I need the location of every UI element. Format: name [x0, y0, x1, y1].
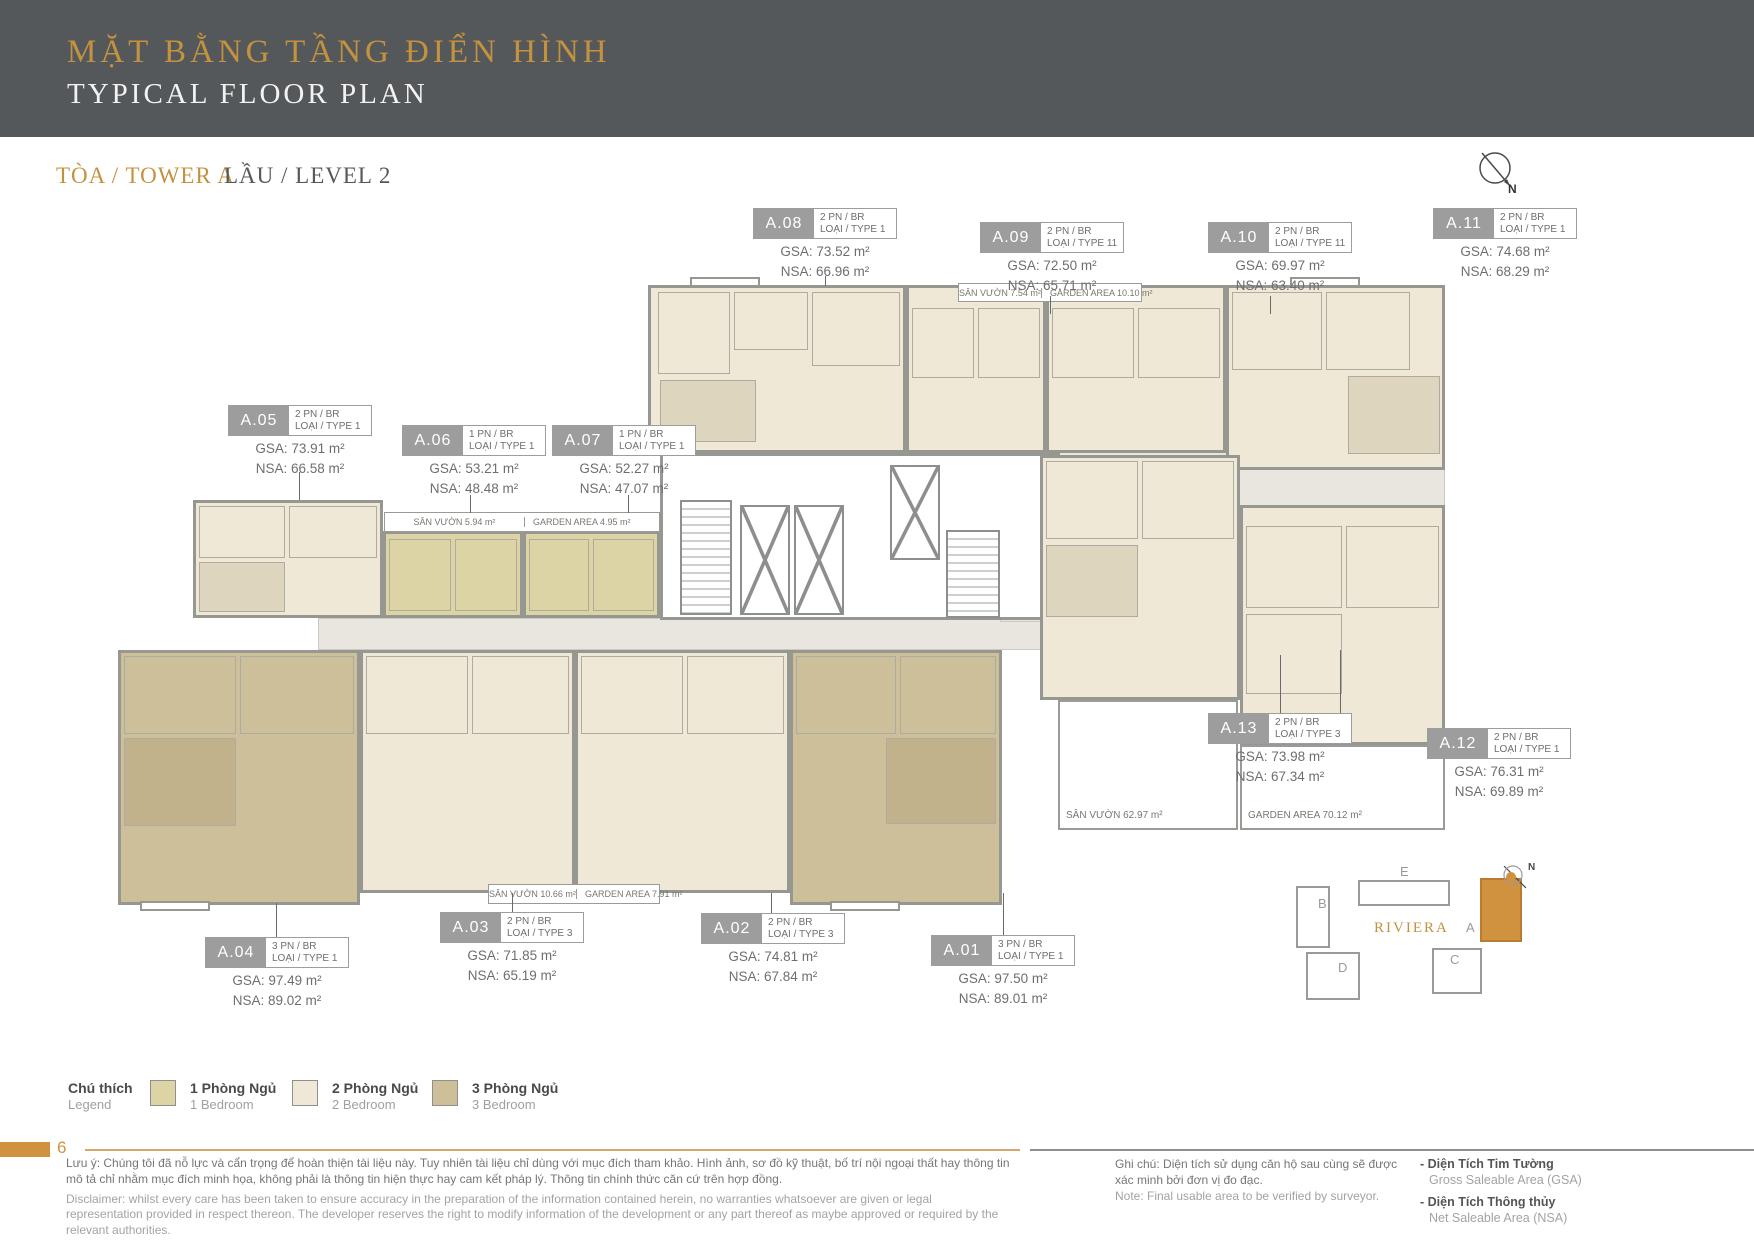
minimap-project-name: RIVIERA	[1374, 920, 1449, 937]
room-divider	[734, 292, 808, 350]
unit-gsa: GSA: 73.52 m²	[753, 244, 897, 259]
unit-type: 2 PN / BRLOẠI / TYPE 1	[289, 406, 371, 435]
minimap-building-d	[1306, 952, 1360, 1000]
room-divider	[687, 656, 784, 734]
legend-title-vi: Chú thích	[68, 1080, 133, 1096]
room-divider	[658, 292, 730, 374]
unit-nsa: NSA: 48.48 m²	[402, 481, 546, 496]
minimap-compass-label: N	[1528, 862, 1535, 873]
room-divider	[240, 656, 354, 734]
disclaimer-block: Lưu ý: Chúng tôi đã nỗ lực và cẩn trọng …	[66, 1156, 1011, 1239]
unit-id: A.12	[1428, 729, 1488, 758]
unit-gsa: GSA: 76.31 m²	[1427, 764, 1571, 779]
unit-label-a11: A.11 2 PN / BRLOẠI / TYPE 1 GSA: 74.68 m…	[1433, 208, 1577, 279]
garden-label: GARDEN AREA 70.12 m²	[1248, 810, 1362, 821]
room-divider	[199, 562, 285, 612]
room-divider	[886, 738, 996, 824]
room-divider	[1052, 308, 1134, 378]
elevator-shaft	[740, 505, 790, 615]
unit-label-a02: A.02 2 PN / BRLOẠI / TYPE 3 GSA: 74.81 m…	[701, 913, 845, 984]
unit-tag: A.01 3 PN / BRLOẠI / TYPE 1	[931, 935, 1075, 966]
staircase	[946, 530, 1000, 618]
staircase	[680, 500, 732, 615]
unit-id: A.07	[553, 426, 613, 455]
unit-type: 2 PN / BRLOẠI / TYPE 3	[1269, 714, 1351, 743]
unit-label-a09: A.09 2 PN / BRLOẠI / TYPE 11 GSA: 72.50 …	[980, 222, 1124, 293]
legend-label-1br-en: 1 Bedroom	[190, 1097, 254, 1112]
unit-tag: A.13 2 PN / BRLOẠI / TYPE 3	[1208, 713, 1352, 744]
garden-label: GARDEN AREA 4.95 m²	[524, 517, 631, 527]
unit-label-a08: A.08 2 PN / BRLOẠI / TYPE 1 GSA: 73.52 m…	[753, 208, 897, 279]
unit-type: 2 PN / BRLOẠI / TYPE 1	[814, 209, 896, 238]
unit-nsa: NSA: 67.84 m²	[701, 969, 845, 984]
unit-tag: A.06 1 PN / BRLOẠI / TYPE 1	[402, 425, 546, 456]
legend-swatch-3br	[432, 1080, 458, 1106]
unit-tag: A.12 2 PN / BRLOẠI / TYPE 1	[1427, 728, 1571, 759]
room-divider	[389, 539, 451, 611]
unit-type: 2 PN / BRLOẠI / TYPE 3	[762, 914, 844, 943]
gsa-term: - Diện Tích Tim Tường	[1420, 1156, 1750, 1172]
balcony	[140, 901, 210, 911]
room-divider	[455, 539, 517, 611]
minimap-label-e: E	[1400, 864, 1409, 879]
garden-label: SÂN VƯỜN 10.66 m²	[489, 889, 576, 899]
unit-tag: A.10 2 PN / BRLOẠI / TYPE 11	[1208, 222, 1352, 253]
room-divider	[912, 308, 974, 378]
leader-line-a07	[628, 495, 629, 513]
unit-tag: A.05 2 PN / BRLOẠI / TYPE 1	[228, 405, 372, 436]
nsa-term: - Diện Tích Thông thủy	[1420, 1194, 1750, 1210]
unit-tag: A.03 2 PN / BRLOẠI / TYPE 3	[440, 912, 584, 943]
room-divider	[900, 656, 996, 734]
room-divider	[1046, 461, 1138, 539]
unit-label-a12: A.12 2 PN / BRLOẠI / TYPE 1 GSA: 76.31 m…	[1427, 728, 1571, 799]
floor-plan-page: MẶT BẰNG TẦNG ĐIỂN HÌNH TYPICAL FLOOR PL…	[0, 0, 1754, 1241]
legend-title-en: Legend	[68, 1097, 111, 1112]
unit-label-a07: A.07 1 PN / BRLOẠI / TYPE 1 GSA: 52.27 m…	[552, 425, 696, 496]
unit-type: 2 PN / BRLOẠI / TYPE 11	[1041, 223, 1123, 252]
unit-id: A.11	[1434, 209, 1494, 238]
leader-line-a02	[771, 893, 772, 913]
room-divider	[472, 656, 569, 734]
room-divider	[124, 656, 236, 734]
unit-nsa: NSA: 67.34 m²	[1208, 769, 1352, 784]
leader-line-a06	[470, 495, 471, 513]
unit-tag: A.08 2 PN / BRLOẠI / TYPE 1	[753, 208, 897, 239]
unit-id: A.08	[754, 209, 814, 238]
garden-label: SÂN VƯỜN 5.94 m²	[414, 517, 496, 527]
legend-label-2br-en: 2 Bedroom	[332, 1097, 396, 1112]
unit-tag: A.04 3 PN / BRLOẠI / TYPE 1	[205, 937, 349, 968]
unit-nsa: NSA: 66.58 m²	[228, 461, 372, 476]
unit-tag: A.11 2 PN / BRLOẠI / TYPE 1	[1433, 208, 1577, 239]
garden-label: SÂN VƯỜN 62.97 m²	[1066, 810, 1163, 821]
unit-tag: A.07 1 PN / BRLOẠI / TYPE 1	[552, 425, 696, 456]
elevator-shaft	[794, 505, 844, 615]
unit-label-a10: A.10 2 PN / BRLOẠI / TYPE 11 GSA: 69.97 …	[1208, 222, 1352, 293]
room-divider	[1142, 461, 1234, 539]
unit-type: 3 PN / BRLOẠI / TYPE 1	[266, 938, 348, 967]
unit-type: 2 PN / BRLOẠI / TYPE 3	[501, 913, 583, 942]
legend-label-3br-en: 3 Bedroom	[472, 1097, 536, 1112]
unit-nsa: NSA: 63.40 m²	[1208, 278, 1352, 293]
room-divider	[1246, 614, 1342, 694]
garden-label: GARDEN AREA 7.91 m²	[576, 889, 683, 899]
unit-nsa: NSA: 89.02 m²	[205, 993, 349, 1008]
room-divider	[978, 308, 1040, 378]
unit-nsa: NSA: 65.71 m²	[980, 278, 1124, 293]
note-vi: Ghi chú: Diện tích sử dụng căn hộ sau cù…	[1115, 1156, 1415, 1188]
footer-rule-left	[85, 1149, 1020, 1151]
unit-id: A.05	[229, 406, 289, 435]
leader-line-a09	[1050, 296, 1051, 314]
unit-gsa: GSA: 53.21 m²	[402, 461, 546, 476]
unit-type: 2 PN / BRLOẠI / TYPE 1	[1488, 729, 1570, 758]
minimap-label-c: C	[1450, 952, 1459, 967]
unit-nsa: NSA: 69.89 m²	[1427, 784, 1571, 799]
area-definitions: - Diện Tích Tim Tường Gross Saleable Are…	[1420, 1156, 1750, 1231]
unit-label-a05: A.05 2 PN / BRLOẠI / TYPE 1 GSA: 73.91 m…	[228, 405, 372, 476]
unit-gsa: GSA: 69.97 m²	[1208, 258, 1352, 273]
room-divider	[1346, 526, 1439, 608]
elevator-shaft	[890, 465, 940, 560]
unit-type: 1 PN / BRLOẠI / TYPE 1	[613, 426, 695, 455]
minimap-label-d: D	[1338, 960, 1347, 975]
leader-line-a04	[276, 903, 277, 937]
room-divider	[1046, 545, 1138, 617]
room-divider	[199, 506, 285, 558]
unit-id: A.10	[1209, 223, 1269, 252]
page-number: 6	[57, 1138, 66, 1158]
unit-label-a03: A.03 2 PN / BRLOẠI / TYPE 3 GSA: 71.85 m…	[440, 912, 584, 983]
gsa-definition: Gross Saleable Area (GSA)	[1429, 1172, 1750, 1188]
room-divider	[124, 738, 236, 826]
legend-swatch-1br	[150, 1080, 176, 1106]
legend-label-3br-vi: 3 Phòng Ngủ	[472, 1080, 558, 1096]
unit-nsa: NSA: 68.29 m²	[1433, 264, 1577, 279]
unit-gsa: GSA: 97.49 m²	[205, 973, 349, 988]
corridor-mid	[318, 618, 1060, 650]
room-divider	[581, 656, 683, 734]
page-number-bar	[0, 1142, 50, 1157]
minimap-building-e	[1358, 880, 1450, 906]
note-block: Ghi chú: Diện tích sử dụng căn hộ sau cù…	[1115, 1156, 1415, 1205]
unit-type: 2 PN / BRLOẠI / TYPE 1	[1494, 209, 1576, 238]
unit-id: A.04	[206, 938, 266, 967]
room-divider	[1326, 292, 1410, 370]
footer-rule-right	[1030, 1149, 1754, 1151]
unit-nsa: NSA: 66.96 m²	[753, 264, 897, 279]
note-en: Note: Final usable area to be verified b…	[1115, 1188, 1415, 1204]
north-compass-icon	[1468, 146, 1526, 204]
page-title-en: TYPICAL FLOOR PLAN	[67, 78, 428, 111]
leader-line-a13	[1280, 655, 1281, 713]
leader-line-a10	[1270, 296, 1271, 314]
garden-strip-bottom: SÂN VƯỜN 10.66 m²GARDEN AREA 7.91 m²	[488, 884, 660, 904]
room-divider	[1246, 526, 1342, 608]
unit-id: A.09	[981, 223, 1041, 252]
unit-id: A.03	[441, 913, 501, 942]
unit-label-a04: A.04 3 PN / BRLOẠI / TYPE 1 GSA: 97.49 m…	[205, 937, 349, 1008]
unit-gsa: GSA: 73.98 m²	[1208, 749, 1352, 764]
unit-gsa: GSA: 52.27 m²	[552, 461, 696, 476]
level-label: LẦU / LEVEL 2	[224, 163, 391, 189]
unit-label-a06: A.06 1 PN / BRLOẠI / TYPE 1 GSA: 53.21 m…	[402, 425, 546, 496]
unit-gsa: GSA: 74.68 m²	[1433, 244, 1577, 259]
room-divider	[1348, 376, 1440, 454]
room-divider	[289, 506, 377, 558]
room-divider	[1232, 292, 1322, 370]
leader-line-a01	[1003, 893, 1004, 935]
unit-id: A.01	[932, 936, 992, 965]
nsa-definition: Net Saleable Area (NSA)	[1429, 1210, 1750, 1226]
room-divider	[529, 539, 589, 611]
unit-id: A.13	[1209, 714, 1269, 743]
leader-line-a03	[512, 893, 513, 912]
legend-label-1br-vi: 1 Phòng Ngủ	[190, 1080, 276, 1096]
unit-type: 3 PN / BRLOẠI / TYPE 1	[992, 936, 1074, 965]
unit-label-a13: A.13 2 PN / BRLOẠI / TYPE 3 GSA: 73.98 m…	[1208, 713, 1352, 784]
unit-gsa: GSA: 71.85 m²	[440, 948, 584, 963]
page-title-vi: MẶT BẰNG TẦNG ĐIỂN HÌNH	[67, 34, 611, 71]
room-divider	[812, 292, 900, 366]
minimap-label-b: B	[1318, 896, 1327, 911]
unit-type: 2 PN / BRLOẠI / TYPE 11	[1269, 223, 1351, 252]
room-divider	[796, 656, 896, 734]
unit-gsa: GSA: 72.50 m²	[980, 258, 1124, 273]
unit-nsa: NSA: 65.19 m²	[440, 968, 584, 983]
legend-label-2br-vi: 2 Phòng Ngủ	[332, 1080, 418, 1096]
balcony	[690, 277, 760, 287]
garden-strip-mid: SÂN VƯỜN 5.94 m²GARDEN AREA 4.95 m²	[384, 512, 660, 532]
unit-gsa: GSA: 74.81 m²	[701, 949, 845, 964]
unit-gsa: GSA: 97.50 m²	[931, 971, 1075, 986]
unit-nsa: NSA: 47.07 m²	[552, 481, 696, 496]
room-divider	[593, 539, 654, 611]
minimap-label-a: A	[1466, 920, 1475, 935]
balcony	[830, 901, 900, 911]
unit-nsa: NSA: 89.01 m²	[931, 991, 1075, 1006]
unit-gsa: GSA: 73.91 m²	[228, 441, 372, 456]
disclaimer-vi: Lưu ý: Chúng tôi đã nỗ lực và cẩn trọng …	[66, 1156, 1011, 1188]
unit-id: A.02	[702, 914, 762, 943]
disclaimer-en: Disclaimer: whilst every care has been t…	[66, 1192, 1011, 1239]
leader-line-a05	[299, 472, 300, 500]
unit-tag: A.09 2 PN / BRLOẠI / TYPE 11	[980, 222, 1124, 253]
unit-tag: A.02 2 PN / BRLOẠI / TYPE 3	[701, 913, 845, 944]
room-divider	[1138, 308, 1220, 378]
legend-swatch-2br	[292, 1080, 318, 1106]
unit-type: 1 PN / BRLOẠI / TYPE 1	[463, 426, 545, 455]
unit-label-a01: A.01 3 PN / BRLOẠI / TYPE 1 GSA: 97.50 m…	[931, 935, 1075, 1006]
tower-label: TÒA / TOWER A	[56, 163, 235, 189]
north-compass-label: N	[1508, 182, 1517, 196]
unit-id: A.06	[403, 426, 463, 455]
room-divider	[366, 656, 468, 734]
